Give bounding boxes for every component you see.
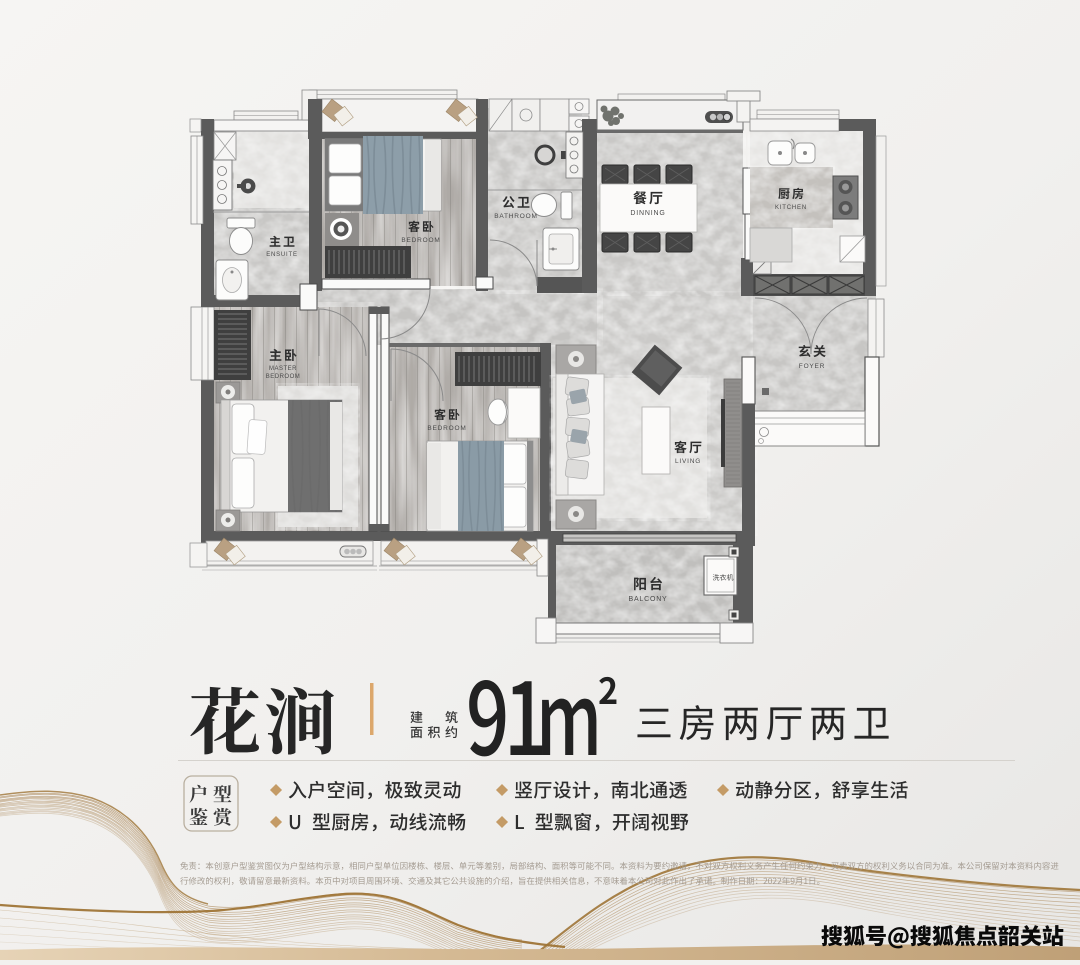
svg-text:MASTER: MASTER (269, 366, 297, 372)
svg-text:BALCONY: BALCONY (628, 596, 667, 603)
svg-text:BATHROOM: BATHROOM (494, 213, 537, 220)
svg-text:DINNING: DINNING (630, 210, 665, 217)
svg-text:BEDROOM: BEDROOM (427, 425, 466, 432)
svg-text:KITCHEN: KITCHEN (775, 205, 807, 211)
svg-text:BEDROOM: BEDROOM (266, 374, 301, 380)
svg-text:LIVING: LIVING (675, 458, 701, 465)
svg-text:ENSUITE: ENSUITE (266, 252, 298, 258)
svg-text:FOYER: FOYER (799, 363, 825, 370)
svg-text:BEDROOM: BEDROOM (401, 237, 440, 244)
